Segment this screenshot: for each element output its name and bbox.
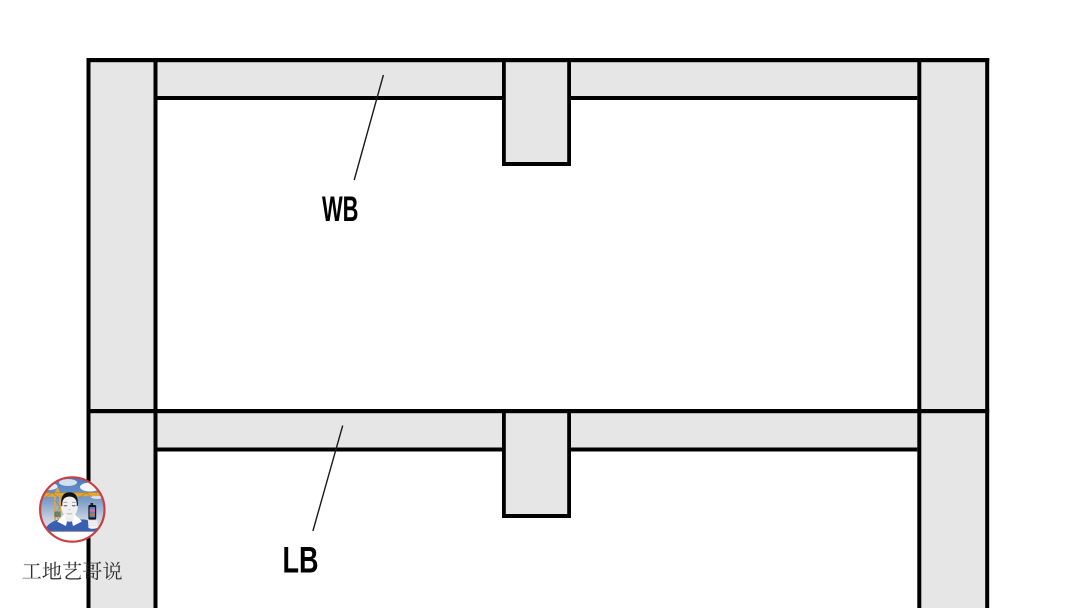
- svg-text:WB: WB: [322, 190, 359, 229]
- svg-text:LB: LB: [283, 540, 319, 581]
